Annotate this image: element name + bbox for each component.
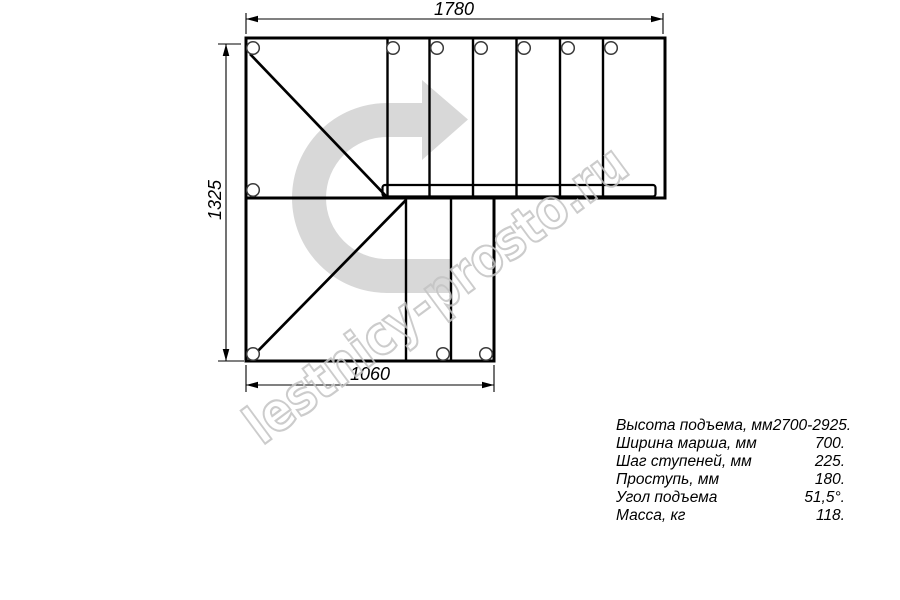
dim-arrow	[223, 349, 230, 361]
spec-value: 118.	[816, 507, 845, 525]
dim-arrow	[482, 382, 494, 388]
dim-arrow	[651, 16, 663, 22]
spec-row-mass: Масса, кг 118.	[616, 507, 845, 525]
spec-row-height: Высота подъема, мм 2700-2925.	[616, 417, 845, 435]
spec-value: 51,5°.	[804, 489, 845, 507]
dimension-top-label: 1780	[434, 0, 474, 19]
stair-drawing-page: 1780 1325 1060 lestnicy-prosto.ru Высота…	[0, 0, 900, 600]
spec-label: Угол подъема	[616, 489, 717, 507]
spec-row-step: Шаг ступеней, мм 225.	[616, 453, 845, 471]
spec-label: Шаг ступеней, мм	[616, 453, 752, 471]
spec-value: 2700-2925.	[773, 417, 851, 435]
spec-row-width: Ширина марша, мм 700.	[616, 435, 845, 453]
dimension-left-label: 1325	[205, 179, 225, 220]
watermark-text: lestnicy-prosto.ru	[232, 132, 639, 456]
spec-row-tread: Проступь, мм 180.	[616, 471, 845, 489]
spec-value: 180.	[815, 471, 845, 489]
dim-arrow	[223, 44, 230, 56]
spec-label: Ширина марша, мм	[616, 435, 757, 453]
dim-arrow	[246, 16, 258, 22]
spec-label: Масса, кг	[616, 507, 685, 525]
spec-label: Высота подъема, мм	[616, 417, 773, 435]
spec-value: 700.	[815, 435, 845, 453]
spec-label: Проступь, мм	[616, 471, 719, 489]
spec-row-angle: Угол подъема 51,5°.	[616, 489, 845, 507]
spec-table: Высота подъема, мм 2700-2925. Ширина мар…	[616, 417, 845, 524]
spec-value: 225.	[815, 453, 845, 471]
